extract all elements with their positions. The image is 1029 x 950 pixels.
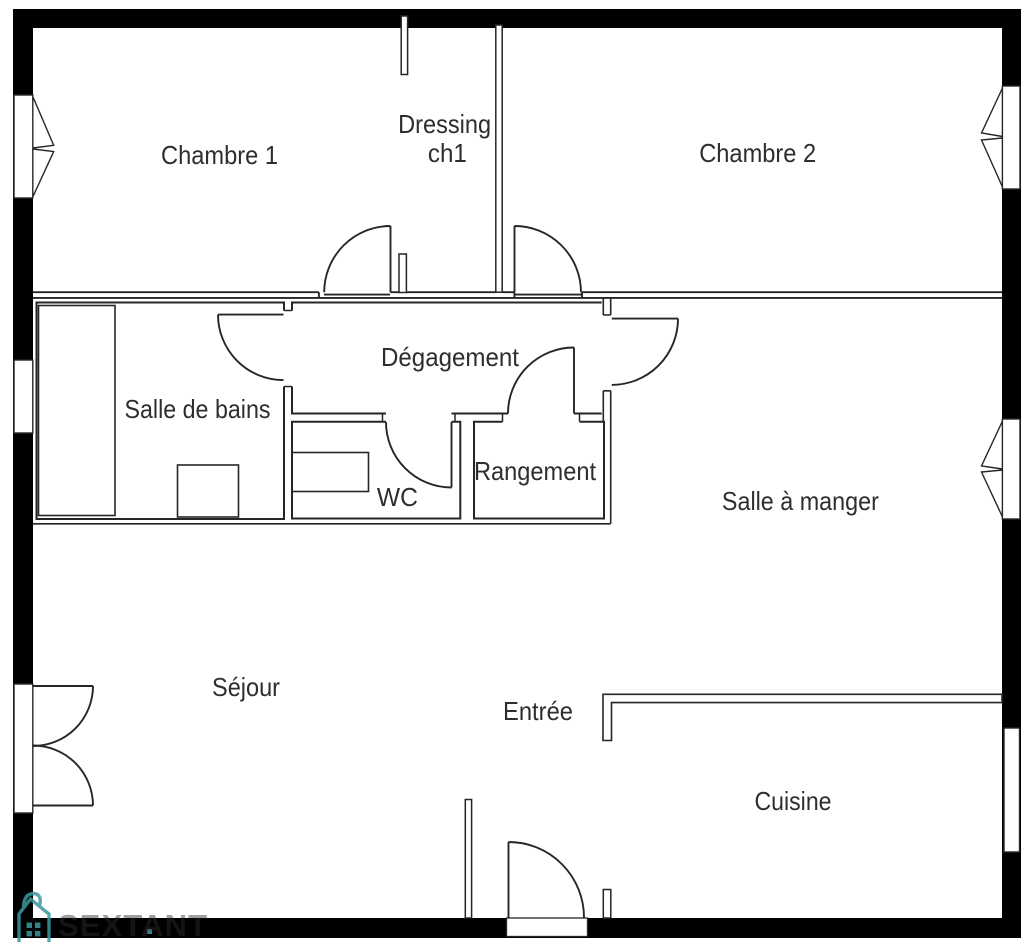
svg-text:Rangement: Rangement — [474, 456, 597, 486]
svg-text:ch1: ch1 — [428, 138, 467, 168]
svg-text:Entrée: Entrée — [503, 696, 573, 726]
svg-text:WC: WC — [377, 482, 418, 512]
svg-text:Cuisine: Cuisine — [755, 786, 832, 816]
svg-text:Salle de bains: Salle de bains — [125, 394, 271, 424]
svg-text:Chambre 1: Chambre 1 — [161, 140, 278, 170]
svg-text:Dégagement: Dégagement — [381, 342, 520, 372]
svg-text:Séjour: Séjour — [212, 672, 280, 702]
svg-text:SEXTANT: SEXTANT — [58, 908, 207, 943]
svg-text:Dressing: Dressing — [398, 109, 491, 139]
svg-text:Salle à manger: Salle à manger — [722, 486, 879, 516]
svg-text:Chambre 2: Chambre 2 — [699, 138, 816, 168]
